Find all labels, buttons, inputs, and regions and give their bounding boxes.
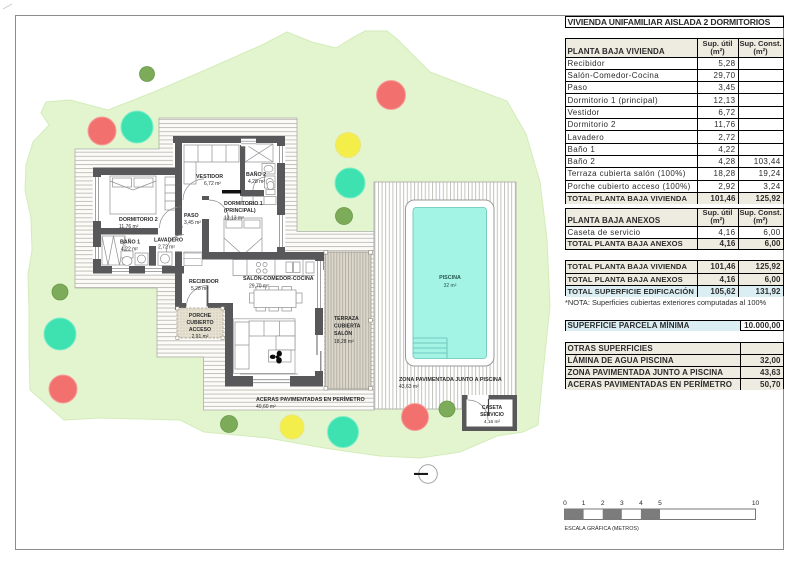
- svg-text:5,28 m²: 5,28 m²: [191, 286, 208, 292]
- svg-text:DORMITORIO 2: DORMITORIO 2: [119, 217, 158, 223]
- svg-text:3: 3: [620, 500, 624, 507]
- svg-text:CASETA: CASETA: [482, 405, 503, 411]
- svg-text:1: 1: [582, 500, 586, 507]
- svg-text:CUBIERTA: CUBIERTA: [334, 324, 361, 330]
- svg-text:2,72 m²: 2,72 m²: [158, 245, 175, 251]
- svg-text:10: 10: [752, 500, 760, 507]
- svg-text:3,45 m²: 3,45 m²: [184, 220, 201, 226]
- svg-text:TERRAZA: TERRAZA: [334, 316, 359, 322]
- svg-text:SERVICIO: SERVICIO: [480, 412, 504, 418]
- svg-text:11,76 m²: 11,76 m²: [119, 224, 139, 230]
- svg-text:(PRINCIPAL): (PRINCIPAL): [224, 208, 256, 214]
- svg-text:12,13 m²: 12,13 m²: [224, 216, 244, 222]
- svg-text:29,70 m²: 29,70 m²: [249, 284, 269, 290]
- svg-text:SALÓN-COMEDOR-COCINA: SALÓN-COMEDOR-COCINA: [243, 274, 314, 282]
- svg-text:PISCINA: PISCINA: [439, 275, 461, 281]
- svg-text:40,60 m²: 40,60 m²: [256, 404, 276, 410]
- svg-text:32 m²: 32 m²: [444, 283, 457, 289]
- svg-text:BAÑO 2: BAÑO 2: [246, 171, 266, 178]
- svg-text:RECIBIDOR: RECIBIDOR: [189, 279, 219, 285]
- svg-text:18,28 m²: 18,28 m²: [334, 339, 354, 345]
- svg-text:SALÓN: SALÓN: [334, 329, 352, 337]
- svg-text:PORCHE: PORCHE: [189, 313, 212, 319]
- svg-text:4,22 m²: 4,22 m²: [121, 247, 138, 253]
- svg-text:PASO: PASO: [184, 213, 199, 219]
- svg-text:43,63 m²: 43,63 m²: [399, 384, 419, 390]
- svg-text:CUBIERTO: CUBIERTO: [187, 320, 214, 326]
- svg-text:ESCALA GRÁFICA (METROS): ESCALA GRÁFICA (METROS): [565, 525, 639, 532]
- svg-text:DORMITORIO 1: DORMITORIO 1: [224, 201, 263, 207]
- svg-text:2: 2: [601, 500, 605, 507]
- svg-text:6,72 m²: 6,72 m²: [204, 181, 221, 187]
- svg-text:4,16 m²: 4,16 m²: [484, 419, 501, 425]
- svg-text:5: 5: [658, 500, 662, 507]
- svg-text:ACERAS PAVIMENTADAS EN PERÍMET: ACERAS PAVIMENTADAS EN PERÍMETRO: [256, 395, 365, 403]
- svg-text:ACCESO: ACCESO: [189, 327, 211, 333]
- svg-text:ZONA PAVIMENTADA JUNTO A PISCI: ZONA PAVIMENTADA JUNTO A PISCINA: [399, 377, 502, 383]
- svg-text:BAÑO 1: BAÑO 1: [120, 239, 140, 246]
- svg-text:4,28 m²: 4,28 m²: [248, 179, 265, 185]
- svg-text:2,91 m²: 2,91 m²: [192, 334, 209, 340]
- svg-text:VESTIDOR: VESTIDOR: [196, 174, 223, 180]
- svg-text:4: 4: [639, 500, 643, 507]
- svg-text:0: 0: [563, 500, 567, 507]
- svg-text:LAVADERO: LAVADERO: [154, 238, 183, 244]
